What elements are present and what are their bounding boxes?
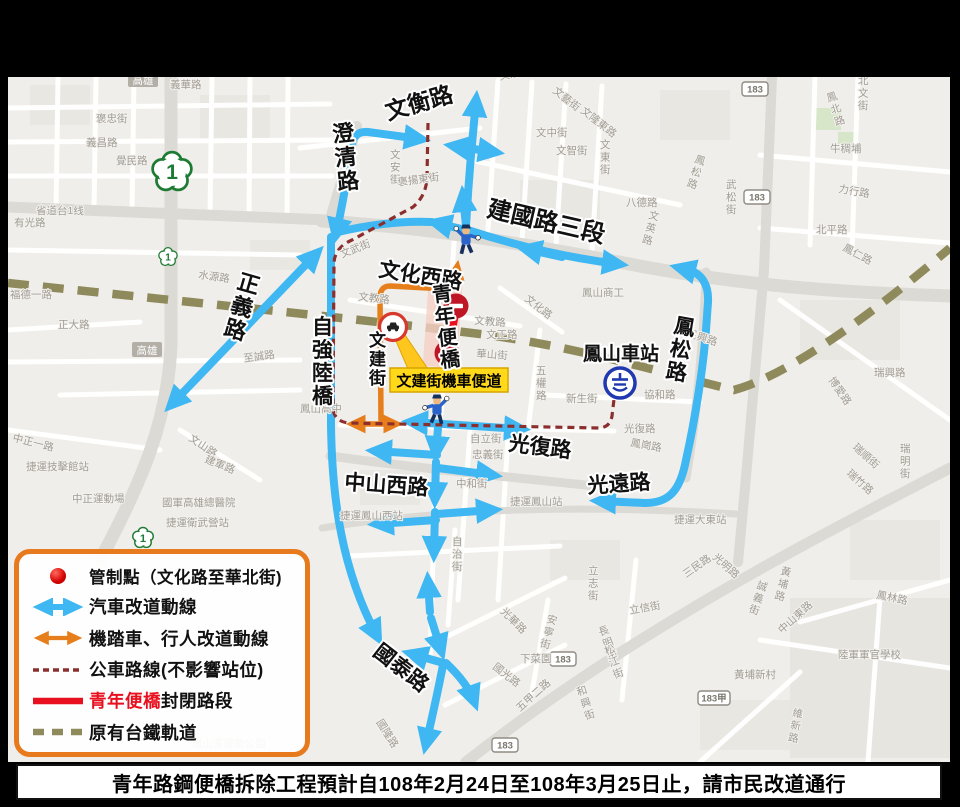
legend-box: 管制點（文化路至華北街) 汽車改道動線 機踏車、行人改道動線 公車路線(不影響站… [14, 549, 310, 757]
street-label: 覺民路 [116, 154, 148, 167]
street-label: 中和街 [456, 477, 488, 490]
svg-text:1: 1 [165, 252, 171, 263]
svg-text:1: 1 [166, 160, 178, 184]
bike-lane-tag-label: 文建街機車便道 [396, 372, 501, 390]
bus-dashed-line-icon [29, 665, 87, 675]
street-label: 中正運動場 [72, 492, 125, 505]
street-label: 瑞興路 [874, 366, 906, 379]
svg-text:183: 183 [747, 85, 763, 96]
caption-bar: 青年路鋼便橋拆除工程預計自108年2月24日至108年3月25日止，請市民改道通… [16, 764, 942, 800]
street-label: 自治街 [452, 535, 463, 573]
street-label: 協和路 [644, 388, 676, 401]
street-label: 捷運鳳山站 [510, 495, 563, 508]
street-label: 捷運鳳山西站 [340, 509, 403, 522]
legend-row-control-point: 管制點（文化路至華北街) [27, 560, 297, 591]
city-badge: 高雄 [128, 72, 158, 87]
legend-row-closure: 青年便橋封閉路段 [27, 685, 297, 716]
street-label: 忠義街 [472, 448, 504, 461]
red-solid-line-icon [29, 696, 87, 706]
legend-label-red: 青年便橋 [89, 691, 161, 711]
street-label: 北平路 [816, 223, 848, 236]
street-label: 武松街 [726, 178, 737, 216]
street-label: 捷運衛武營站 [166, 516, 229, 529]
street-label: 黃埔新村 [734, 668, 776, 681]
legend-label-black: 封閉路段 [161, 691, 233, 711]
legend-row-railway: 原有台鐵軌道 [27, 717, 297, 748]
road-label: 鳳山車站 [583, 342, 659, 365]
street-label: 北文街 [858, 75, 869, 112]
route-183-shield: 183 [744, 190, 770, 204]
street-label: 鳳山商工 [582, 286, 624, 299]
street-label: 八德路 [626, 196, 658, 209]
olive-dashed-line-icon [29, 726, 87, 738]
street-label: 華山街 [476, 347, 509, 362]
orange-double-arrow-icon [29, 630, 87, 646]
street-label: 新生街 [566, 392, 598, 405]
legend-label: 汽車改道動線 [89, 594, 197, 619]
road-label: 文建街 [368, 330, 387, 388]
street-label: 正大路 [58, 318, 90, 331]
svg-text:183: 183 [497, 741, 513, 752]
legend-label: 原有台鐵軌道 [89, 720, 197, 745]
street-label: 義昌路 [86, 136, 118, 149]
street-label: 牛稠埔 [830, 142, 862, 155]
street-label: 捷運大東站 [674, 513, 727, 526]
street-label: 光復路 [624, 422, 656, 435]
route-183-shield: 183甲 [698, 691, 730, 705]
street-label: 下菜園 [520, 653, 552, 665]
svg-text:高雄: 高雄 [137, 344, 158, 357]
street-label: 褒忠街 [96, 112, 128, 125]
legend-row-moto-route: 機踏車、行人改道動線 [27, 623, 297, 654]
road-label: 自強陸橋 [312, 315, 334, 408]
street-label: 國軍高雄總醫院 [162, 496, 236, 509]
street-label: 文正路 [486, 328, 518, 341]
road-label: 光遠路 [586, 470, 653, 498]
svg-text:183: 183 [555, 655, 571, 666]
street-label: 瑞明街 [900, 443, 911, 480]
legend-label: 機踏車、行人改道動線 [89, 626, 269, 651]
street-label: 陸軍軍官學校 [838, 648, 901, 661]
street-label: 自立街 [470, 432, 502, 445]
street-label: 文中街 [536, 126, 568, 139]
legend-label: 公車路線(不影響站位) [89, 657, 264, 682]
svg-text:183甲: 183甲 [701, 694, 726, 705]
route-183-shield: 183 [550, 652, 576, 666]
street-label: 文東街 [600, 138, 611, 176]
blue-double-arrow-icon [29, 598, 87, 616]
svg-text:1: 1 [140, 533, 146, 545]
caption-text: 青年路鋼便橋拆除工程預計自108年2月24日至108年3月25日止，請市民改道通… [112, 768, 846, 797]
poster-frame: 文建街機車便道 183183183183183甲111 高雄高雄 [0, 0, 960, 807]
train-station-icon [605, 368, 635, 398]
street-label: 義華路 [170, 78, 202, 91]
svg-text:183: 183 [749, 193, 765, 204]
street-label: 文智街 [556, 144, 588, 157]
svg-text:高雄: 高雄 [133, 74, 154, 87]
legend-label: 管制點（文化路至華北街) [89, 564, 282, 588]
legend-row-bus-route: 公車路線(不影響站位) [27, 654, 297, 685]
street-label: 福德一路 [10, 288, 52, 301]
street-label: 文教路 [474, 314, 507, 329]
street-label: 五權路 [536, 365, 547, 402]
city-badge: 高雄 [132, 342, 162, 357]
street-label: 立志街 [588, 564, 599, 602]
control-point-dot-icon [50, 568, 66, 584]
route-183-shield: 183 [492, 738, 518, 752]
route-183-shield: 183 [742, 82, 768, 96]
legend-row-car-route: 汽車改道動線 [27, 591, 297, 622]
street-label: 省道台1线 [36, 204, 84, 217]
street-label: 捷運技擊館站 [26, 460, 89, 473]
street-label: 有光路 [14, 216, 46, 229]
